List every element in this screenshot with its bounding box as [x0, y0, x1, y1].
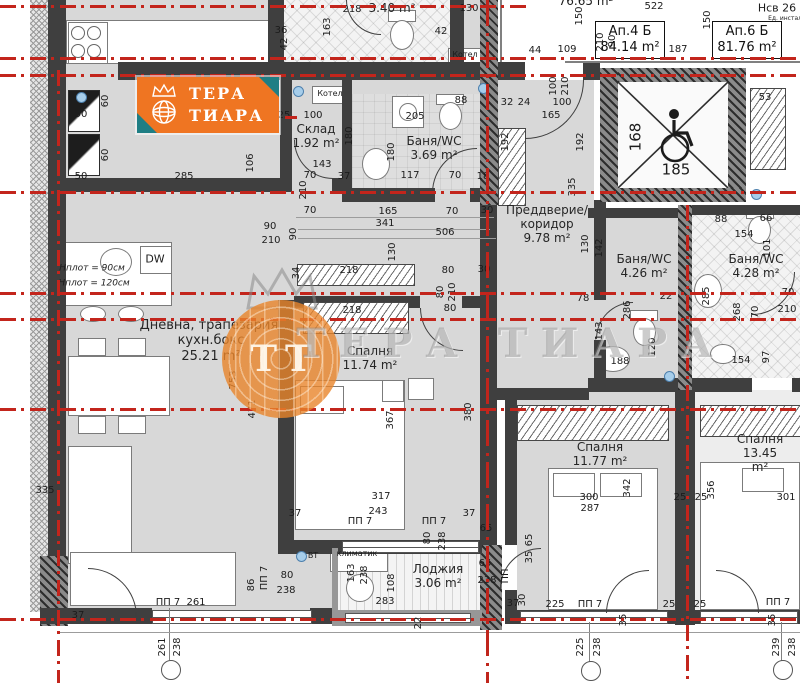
- dimension-label: 506: [435, 228, 454, 238]
- dimension-label: 35: [525, 551, 535, 564]
- room-area: 9.78 m²: [523, 231, 570, 245]
- sofa: [68, 446, 132, 564]
- dimension-label: 335: [35, 486, 54, 496]
- dimension-label: 238: [360, 565, 370, 584]
- dimension-label: 225: [576, 637, 586, 656]
- wall-line-top-right: [565, 61, 800, 63]
- dimension-label: 165: [378, 207, 397, 217]
- dimension-label: 165: [541, 111, 560, 121]
- apartment-name: Ап.6 Б: [726, 24, 769, 39]
- dimension-label: 205: [405, 112, 424, 122]
- axis-bubble: [581, 661, 601, 681]
- dimension-label: ПП 7: [766, 598, 791, 608]
- dimension-label: 142: [595, 238, 605, 257]
- dimension-label: 154: [731, 356, 750, 366]
- room-area: 4.26 m²: [620, 266, 667, 280]
- dimension-label: 218: [339, 266, 358, 276]
- dimension-label: 225: [545, 600, 564, 610]
- window-living: [152, 610, 312, 624]
- dimension-label: 210: [596, 32, 606, 51]
- dimension-label: 210: [561, 76, 571, 95]
- axis-bubble: [773, 660, 793, 680]
- dimension-label: ПП 7: [422, 517, 447, 527]
- logo-line1: ТЕРА: [189, 83, 264, 105]
- dimension-label: 238: [438, 531, 448, 550]
- dimension-label: 36: [275, 26, 288, 36]
- red-axis-line: [0, 318, 800, 321]
- room-label: Баня/WC4.26 m²: [617, 252, 672, 280]
- wall-line-lobby: [500, 0, 502, 62]
- toilet-bowl: [390, 20, 414, 50]
- dimension-label: 335: [568, 177, 578, 196]
- dimension-line: [298, 238, 496, 239]
- red-axis-line: [0, 618, 800, 621]
- axis-bubble: [161, 660, 181, 680]
- dimension-label: 100: [549, 76, 559, 95]
- dimension-label: 285: [702, 286, 712, 305]
- dimension-label: ПП: [501, 568, 511, 583]
- dimension-label: 130: [581, 234, 591, 253]
- wall-top-stub: [583, 62, 600, 80]
- dimension-label: 192: [501, 132, 511, 151]
- wall-bottom-left2: [310, 608, 334, 624]
- dimension-label: 100: [303, 111, 322, 121]
- dimension-label: 32: [501, 98, 514, 108]
- dimension-label: 356: [707, 480, 717, 499]
- stove-burner: [71, 26, 85, 40]
- dimension-label: DW: [145, 254, 164, 265]
- dimension-label: 70: [446, 207, 459, 217]
- dimension-label: 86: [247, 579, 257, 592]
- wall-bath428-bottom: [692, 378, 752, 392]
- dimension-label: 100: [552, 98, 571, 108]
- room-area: 3.69 m²: [410, 148, 457, 162]
- dimension-label: 238: [788, 637, 798, 656]
- room-area: 1.92 m²: [292, 136, 339, 150]
- dimension-label: 65: [525, 534, 535, 547]
- dimension-label: 180: [345, 126, 355, 145]
- dimension-label: 97: [762, 351, 772, 364]
- logo-line2: ТИАРА: [189, 105, 264, 127]
- dimension-label: 210: [299, 180, 309, 199]
- dimension-label: 117: [400, 171, 419, 181]
- vent-dot: [664, 371, 675, 382]
- chair: [118, 416, 146, 434]
- room-label: Баня/WC4.28 m²: [729, 252, 784, 280]
- room-label: Спалня11.77 m²: [573, 440, 628, 468]
- column-marker: [68, 134, 100, 176]
- vent-dot: [296, 551, 307, 562]
- dimension-label: Hплот = 90см: [59, 265, 125, 274]
- toilet-bowl: [439, 102, 462, 130]
- dimension-label: 42: [280, 38, 290, 51]
- dimension-label: климатик: [337, 550, 378, 558]
- dimension-label: 78: [577, 294, 590, 304]
- dimension-label: 180: [387, 142, 397, 161]
- dimension-label: ПП 7: [156, 598, 181, 608]
- dimension-label: 70: [449, 171, 462, 181]
- vent-dot: [293, 86, 304, 97]
- dimension-label: 25: [674, 493, 687, 503]
- dimension-label: 30: [518, 594, 528, 607]
- dimension-label: 76.65 m²: [559, 0, 614, 7]
- room-label: Спалня11.74 m²: [343, 344, 398, 372]
- dimension-label: 70: [304, 206, 317, 216]
- dimension-line: [296, 217, 494, 218]
- dimension-label: 238: [593, 637, 603, 656]
- dimension-label: 130: [388, 242, 398, 261]
- room-name: Баня/WC: [617, 252, 672, 266]
- dimension-label: 60: [101, 95, 111, 108]
- room-name: Баня/WC: [729, 252, 784, 266]
- dimension-label: 261: [186, 598, 205, 608]
- dimension-label: 143: [312, 160, 331, 170]
- dimension-label: 163: [323, 17, 333, 36]
- dimension-label: 187: [668, 45, 687, 55]
- room-name: Лоджия: [413, 562, 464, 576]
- nightstand: [408, 378, 434, 400]
- bed-corner: [382, 380, 404, 402]
- dimension-label: 301: [776, 493, 795, 503]
- dimension-label: 37: [338, 172, 351, 182]
- wall-joint-bedrooms: [675, 390, 695, 625]
- dimension-label: Hплот = 120см: [58, 280, 129, 289]
- room-area: 3.06 m²: [414, 576, 461, 590]
- room-label: Баня/WC3.69 m²: [407, 134, 462, 162]
- dimension-label: ВТ: [308, 552, 318, 560]
- room-label: Склад1.92 m²: [292, 122, 339, 150]
- dimension-label: 150: [703, 10, 713, 29]
- dimension-label: 37: [463, 509, 476, 519]
- chair: [78, 338, 106, 356]
- dimension-label: 239: [772, 637, 782, 656]
- room-label: Спалня13.45 m²: [737, 432, 783, 474]
- dimension-label: 753: [229, 370, 239, 389]
- dimension-label: 367: [386, 410, 396, 429]
- room-label: Лоджия3.06 m²: [413, 562, 464, 590]
- dimension-label: ПП 7: [260, 566, 270, 591]
- dimension-line: [60, 632, 800, 633]
- dimension-label: 285: [174, 172, 193, 182]
- dimension-label: 317: [371, 492, 390, 502]
- wheelchair-icon: [662, 109, 692, 161]
- dimension-label: 210: [261, 236, 280, 246]
- dimension-label: 106: [246, 153, 256, 172]
- wall-bath428-bottom2: [792, 378, 800, 392]
- dimension-label: 66: [760, 214, 773, 224]
- vent-dot: [76, 92, 87, 103]
- room-area: 11.74 m²: [343, 358, 398, 372]
- red-axis-line: [0, 5, 530, 8]
- dimension-label: 60: [101, 149, 111, 162]
- dimension-label: 210: [777, 305, 796, 315]
- dimension-line: [298, 229, 490, 230]
- room-label: 3.40 m²: [368, 1, 415, 15]
- dimension-label: 65: [479, 559, 492, 569]
- red-axis-line: [0, 408, 800, 411]
- wall-bedroom1174-top2: [462, 296, 480, 308]
- dimension-label: 42: [435, 27, 448, 37]
- dimension-label: ПП 7: [578, 600, 603, 610]
- room-label: Дневна, трапезария, кухн.бокс25.21 m²: [140, 318, 283, 364]
- dimension-label: 50: [75, 172, 88, 182]
- room-area: 25.21 m²: [181, 349, 240, 364]
- dimension-label: 163: [347, 563, 357, 582]
- dimension-label: 286: [623, 300, 633, 319]
- dimension-label: 34: [292, 267, 302, 280]
- wall-bath426-top: [588, 208, 680, 218]
- room-name: Спалня: [573, 440, 628, 454]
- chair: [78, 416, 106, 434]
- dimension-label: 522: [644, 2, 663, 12]
- dimension-label: 380: [464, 402, 474, 421]
- dimension-label: 80: [442, 266, 455, 276]
- room-area: 4.28 m²: [732, 266, 779, 280]
- stove-burner: [71, 44, 85, 58]
- dimension-label: 53: [759, 93, 772, 103]
- dimension-label: 300: [579, 493, 598, 503]
- dimension-label: 80: [281, 571, 294, 581]
- dimension-label: 238: [276, 586, 295, 596]
- dimension-label: 109: [557, 45, 576, 55]
- floor-plan: Ап.4 Б 84.14 m² Ап.6 Б 81.76 m²: [0, 0, 800, 683]
- dimension-label: 88: [715, 215, 728, 225]
- dimension-label: 283: [375, 597, 394, 607]
- dimension-label: 120: [648, 337, 658, 356]
- dimension-label: 50: [75, 110, 88, 120]
- dimension-label: 44: [529, 46, 542, 56]
- room-area: 11.77 m²: [573, 454, 628, 468]
- wall-bedroom1177-left: [505, 390, 517, 545]
- dining-table: [68, 356, 170, 416]
- dimension-label: 24: [518, 98, 531, 108]
- dimension-label: 342: [623, 478, 633, 497]
- room-label: Преддверие/ коридор9.78 m²: [506, 203, 588, 245]
- red-axis-line: [0, 74, 800, 77]
- wall-elevator-right: [728, 68, 746, 202]
- grid-line: [169, 608, 170, 660]
- room-name: Склад: [292, 122, 339, 136]
- dimension-label: 341: [375, 219, 394, 229]
- red-axis-line: [0, 57, 800, 60]
- dimension-label: Ед. инстал.: [768, 16, 800, 22]
- dimension-label: 37: [289, 509, 302, 519]
- stove-burner: [87, 44, 101, 58]
- wall-bath-joint: [678, 205, 692, 390]
- agency-logo: ТЕРА ТИАРА: [137, 77, 279, 133]
- red-axis-line: [0, 191, 800, 194]
- dimension-label: 143: [595, 321, 605, 340]
- dimension-label: ПП 7: [348, 517, 373, 527]
- dimension-label: 90: [264, 222, 277, 232]
- stove-burner: [87, 26, 101, 40]
- dimension-label: Нсв 26: [758, 3, 796, 14]
- dimension-label: 192: [576, 132, 586, 151]
- dimension-label: 88: [455, 96, 468, 106]
- grid-line: [589, 622, 590, 662]
- wall-insulation-left: [30, 0, 48, 612]
- dimension-label: 261: [158, 637, 168, 656]
- red-joint-line-right: [686, 205, 689, 683]
- dimension-label: 90: [608, 35, 618, 48]
- dimension-label: 80: [423, 532, 433, 545]
- dimension-label: 238: [173, 637, 183, 656]
- wall-bath428-top: [692, 205, 800, 215]
- red-axis-line: [0, 292, 800, 295]
- dimension-label: 287: [580, 504, 599, 514]
- red-joint-line-center: [486, 0, 489, 683]
- apartment-tag-ap6: Ап.6 Б 81.76 m²: [712, 21, 782, 59]
- dimension-label: 150: [575, 6, 585, 25]
- dimension-label: 101: [763, 238, 773, 257]
- dimension-label: Котел: [317, 90, 342, 98]
- dimension-label: 218: [342, 306, 361, 316]
- dimension-label: 108: [387, 573, 397, 592]
- red-axis-line-v: [57, 70, 60, 683]
- room-name: Преддверие/ коридор: [506, 203, 588, 231]
- wall-sklad-left: [280, 80, 292, 178]
- dimension-label: 70: [751, 306, 761, 319]
- dimension-label: 185: [662, 163, 691, 178]
- room-name: Баня/WC: [407, 134, 462, 148]
- logo-corner-accent: [137, 113, 157, 133]
- dimension-label: 188: [610, 357, 629, 367]
- apartment-area: 81.76 m²: [717, 40, 776, 55]
- room-name: Дневна, трапезария, кухн.бокс: [140, 318, 283, 349]
- dimension-label: 168: [629, 123, 644, 152]
- room-name: Спалня: [343, 344, 398, 358]
- room-name: Спалня: [737, 432, 783, 446]
- pillow: [600, 473, 642, 497]
- dimension-label: 90: [289, 228, 299, 241]
- dimension-label: 25: [663, 600, 676, 610]
- room-area: 13.45 m²: [743, 446, 777, 474]
- dimension-label: 25: [694, 600, 707, 610]
- dimension-label: 154: [734, 230, 753, 240]
- dimension-label: 80: [444, 304, 457, 314]
- wall-elevator-left: [600, 68, 618, 202]
- room-area: 3.40 m²: [368, 1, 415, 15]
